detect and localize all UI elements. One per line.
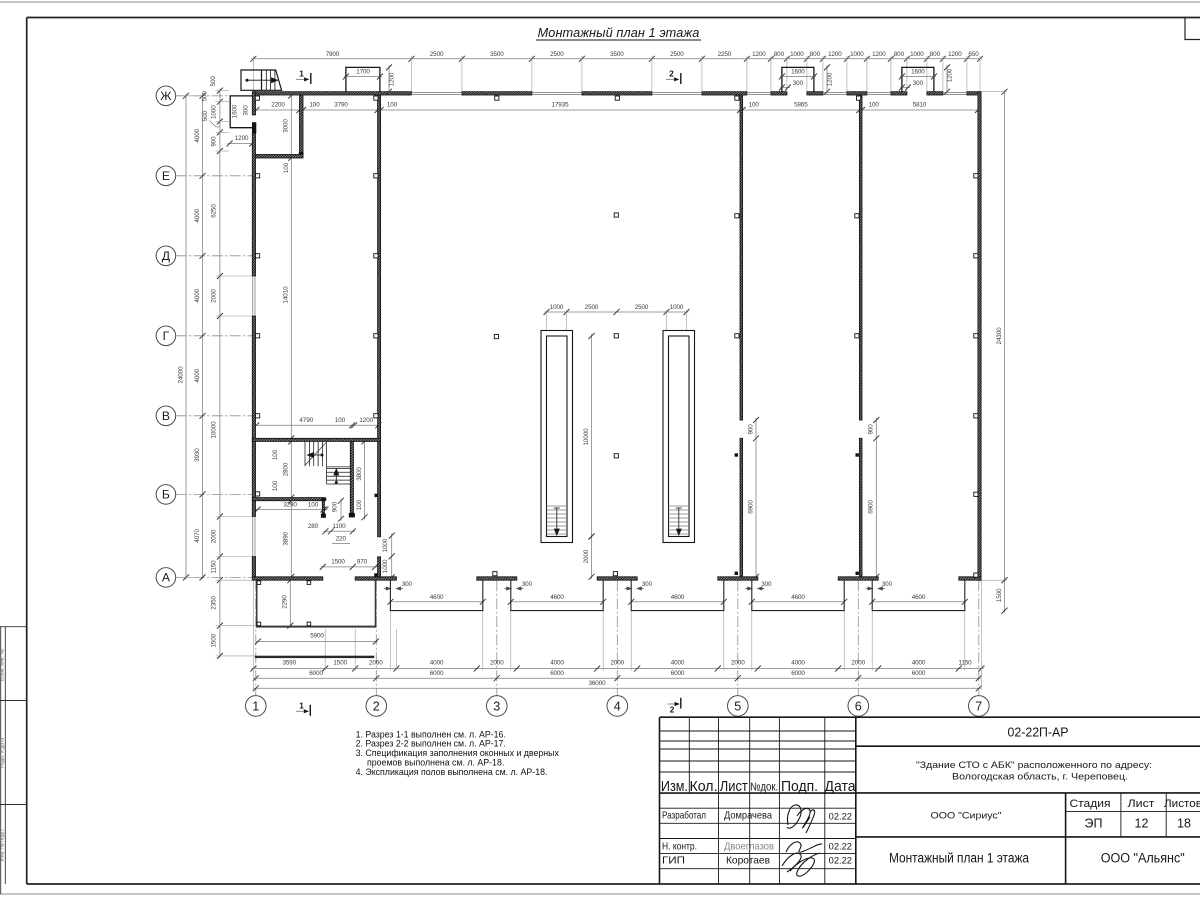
svg-text:1000: 1000 <box>910 51 924 58</box>
svg-text:2250: 2250 <box>718 51 732 58</box>
svg-text:02.22: 02.22 <box>829 856 852 866</box>
svg-text:800: 800 <box>774 51 785 58</box>
svg-text:1500: 1500 <box>331 559 345 566</box>
svg-text:1200: 1200 <box>948 51 962 58</box>
svg-text:Лист: Лист <box>1128 798 1155 810</box>
svg-text:1500: 1500 <box>996 588 1003 602</box>
svg-text:3590: 3590 <box>282 660 296 667</box>
svg-text:3500: 3500 <box>490 51 504 58</box>
svg-text:1200: 1200 <box>828 51 842 58</box>
svg-text:7900: 7900 <box>326 51 340 58</box>
svg-text:4000: 4000 <box>912 660 926 667</box>
svg-text:5810: 5810 <box>913 102 927 109</box>
svg-text:4600: 4600 <box>430 594 444 601</box>
svg-text:№док.: №док. <box>750 781 778 793</box>
svg-text:500: 500 <box>201 91 208 102</box>
svg-text:650: 650 <box>968 51 979 58</box>
svg-text:2: 2 <box>373 699 380 713</box>
svg-text:3: 3 <box>493 699 500 713</box>
svg-text:2500: 2500 <box>430 51 444 58</box>
svg-text:100: 100 <box>309 102 320 109</box>
svg-text:2500: 2500 <box>585 304 599 311</box>
svg-text:Лист: Лист <box>720 778 748 795</box>
svg-text:10000: 10000 <box>211 421 218 439</box>
svg-text:24300: 24300 <box>996 327 1003 345</box>
svg-text:5900: 5900 <box>310 632 324 639</box>
svg-text:Подп. и дата: Подп. и дата <box>0 738 5 769</box>
svg-text:Вологодская область, г. Черепо: Вологодская область, г. Череповец. <box>952 771 1128 781</box>
svg-text:6250: 6250 <box>211 204 218 218</box>
svg-text:500: 500 <box>202 111 209 122</box>
svg-text:ЭП: ЭП <box>1085 816 1103 830</box>
svg-text:Двоеглазов: Двоеглазов <box>724 840 774 852</box>
svg-text:4000: 4000 <box>671 660 685 667</box>
svg-text:1000: 1000 <box>211 105 218 119</box>
svg-text:3790: 3790 <box>334 102 348 109</box>
svg-text:2: 2 <box>670 705 675 714</box>
svg-text:Н. контр.: Н. контр. <box>662 840 697 852</box>
svg-text:Домрачева: Домрачева <box>724 810 772 822</box>
svg-text:В: В <box>162 409 170 423</box>
svg-text:02.22: 02.22 <box>829 842 852 852</box>
svg-text:Взам. инв. №: Взам. инв. № <box>0 648 5 681</box>
svg-text:4070: 4070 <box>194 528 201 542</box>
svg-text:1600: 1600 <box>232 104 239 118</box>
svg-text:100: 100 <box>356 499 363 510</box>
svg-text:4: 4 <box>614 699 621 713</box>
svg-text:900: 900 <box>332 501 339 512</box>
svg-text:Коротаев: Коротаев <box>726 855 770 867</box>
svg-text:800: 800 <box>894 51 905 58</box>
svg-text:100: 100 <box>283 162 290 173</box>
svg-text:2000: 2000 <box>583 549 590 563</box>
svg-text:100: 100 <box>272 449 279 460</box>
svg-text:12: 12 <box>1135 816 1149 830</box>
svg-text:6000: 6000 <box>791 670 805 677</box>
svg-text:1000: 1000 <box>670 304 684 311</box>
svg-text:4000: 4000 <box>550 660 564 667</box>
svg-text:2000: 2000 <box>490 660 504 667</box>
svg-text:900: 900 <box>747 424 754 435</box>
svg-text:2350: 2350 <box>211 595 218 609</box>
svg-text:100: 100 <box>869 102 880 109</box>
svg-text:300: 300 <box>882 581 893 588</box>
svg-text:800: 800 <box>810 51 821 58</box>
svg-text:4000: 4000 <box>791 660 805 667</box>
svg-text:2000: 2000 <box>211 289 218 303</box>
svg-text:1200: 1200 <box>827 72 834 86</box>
svg-text:1200: 1200 <box>872 51 886 58</box>
svg-text:970: 970 <box>357 559 368 566</box>
svg-text:3290: 3290 <box>283 501 297 508</box>
svg-text:Е: Е <box>162 169 170 183</box>
svg-text:14010: 14010 <box>283 286 290 304</box>
svg-text:2000: 2000 <box>610 660 624 667</box>
svg-text:2: 2 <box>669 69 674 78</box>
svg-text:300: 300 <box>522 581 533 588</box>
svg-text:4600: 4600 <box>671 594 685 601</box>
svg-text:1000: 1000 <box>790 51 804 58</box>
svg-text:Б: Б <box>162 488 170 502</box>
svg-text:1200: 1200 <box>235 135 249 142</box>
svg-text:Листов: Листов <box>1164 798 1200 810</box>
svg-text:ГИП: ГИП <box>662 855 685 867</box>
svg-text:6: 6 <box>855 699 862 713</box>
svg-text:100: 100 <box>308 501 319 508</box>
svg-text:Разработал: Разработал <box>662 810 706 822</box>
svg-text:"Здание СТО с АБК" расположенн: "Здание СТО с АБК" расположенного по адр… <box>916 760 1152 770</box>
svg-text:Стадия: Стадия <box>1070 798 1111 810</box>
svg-text:300: 300 <box>761 581 772 588</box>
svg-text:6000: 6000 <box>912 670 926 677</box>
svg-text:1000: 1000 <box>850 51 864 58</box>
svg-text:300: 300 <box>793 80 804 87</box>
svg-text:1100: 1100 <box>332 523 346 530</box>
svg-text:24000: 24000 <box>178 366 185 384</box>
svg-text:220: 220 <box>336 536 347 543</box>
svg-text:1150: 1150 <box>958 660 972 667</box>
svg-text:1600: 1600 <box>911 69 925 76</box>
svg-text:3000: 3000 <box>283 119 290 133</box>
svg-text:1: 1 <box>299 69 304 78</box>
svg-text:300: 300 <box>243 105 250 116</box>
svg-text:2500: 2500 <box>635 304 649 311</box>
svg-text:1200: 1200 <box>947 68 954 82</box>
svg-text:900: 900 <box>211 136 218 147</box>
svg-text:Изм.: Изм. <box>661 778 688 795</box>
svg-text:300: 300 <box>642 581 653 588</box>
svg-text:Ж: Ж <box>160 89 172 103</box>
svg-text:3890: 3890 <box>283 531 290 545</box>
svg-text:800: 800 <box>930 51 941 58</box>
svg-text:02-22П-АР: 02-22П-АР <box>1008 725 1069 740</box>
svg-text:300: 300 <box>402 581 413 588</box>
svg-text:17935: 17935 <box>551 102 569 109</box>
svg-text:Инв. № подл.: Инв. № подл. <box>0 829 5 861</box>
svg-text:1200: 1200 <box>389 72 396 86</box>
svg-text:А: А <box>162 571 171 585</box>
svg-text:6000: 6000 <box>671 670 685 677</box>
svg-text:4600: 4600 <box>791 594 805 601</box>
svg-text:Монтажный план 1 этажа: Монтажный план 1 этажа <box>538 26 700 40</box>
svg-text:Г: Г <box>163 329 170 343</box>
svg-text:4000: 4000 <box>194 128 201 142</box>
svg-text:900: 900 <box>868 424 875 435</box>
svg-text:Дата: Дата <box>825 778 857 795</box>
svg-text:100: 100 <box>749 102 760 109</box>
svg-text:2500: 2500 <box>550 51 564 58</box>
svg-text:4. Экспликация полов выполнена: 4. Экспликация полов выполнена см. л. АР… <box>356 767 548 777</box>
svg-text:6900: 6900 <box>747 500 754 514</box>
svg-text:100: 100 <box>387 102 398 109</box>
svg-text:4790: 4790 <box>299 417 313 424</box>
svg-text:4000: 4000 <box>430 660 444 667</box>
svg-text:ООО "Сириус": ООО "Сириус" <box>931 810 1002 821</box>
svg-text:6000: 6000 <box>550 670 564 677</box>
svg-text:280: 280 <box>308 523 319 530</box>
svg-text:2500: 2500 <box>670 51 684 58</box>
svg-text:3800: 3800 <box>356 467 363 481</box>
svg-text:1200: 1200 <box>752 51 766 58</box>
svg-text:18: 18 <box>1177 816 1191 830</box>
svg-text:1000: 1000 <box>550 304 564 311</box>
svg-text:2000: 2000 <box>731 660 745 667</box>
svg-text:1200: 1200 <box>359 417 373 424</box>
svg-text:1500: 1500 <box>211 633 218 647</box>
svg-text:4600: 4600 <box>912 594 926 601</box>
svg-text:02.22: 02.22 <box>829 812 852 822</box>
svg-text:500: 500 <box>210 76 217 87</box>
svg-text:6000: 6000 <box>309 670 323 677</box>
svg-text:4000: 4000 <box>194 208 201 222</box>
svg-text:1700: 1700 <box>356 69 370 76</box>
svg-text:5865: 5865 <box>794 102 808 109</box>
svg-text:1: 1 <box>252 699 259 713</box>
svg-text:1000: 1000 <box>382 538 389 552</box>
svg-text:ООО "Альянс": ООО "Альянс" <box>1101 851 1185 866</box>
svg-text:Монтажный план 1 этажа: Монтажный план 1 этажа <box>889 851 1029 866</box>
svg-text:10000: 10000 <box>583 428 590 446</box>
svg-text:1600: 1600 <box>791 69 805 76</box>
svg-text:4000: 4000 <box>194 368 201 382</box>
svg-text:2800: 2800 <box>283 462 290 476</box>
svg-text:2060: 2060 <box>369 660 383 667</box>
svg-text:1: 1 <box>299 702 304 711</box>
svg-text:5: 5 <box>734 699 741 713</box>
svg-text:100: 100 <box>335 417 346 424</box>
svg-text:6900: 6900 <box>868 500 875 514</box>
svg-text:2000: 2000 <box>211 529 218 543</box>
svg-text:4000: 4000 <box>194 288 201 302</box>
svg-text:1000: 1000 <box>382 559 389 573</box>
svg-text:Д: Д <box>162 249 171 263</box>
svg-text:3500: 3500 <box>610 51 624 58</box>
svg-text:100: 100 <box>272 480 279 491</box>
svg-text:36000: 36000 <box>588 680 606 687</box>
svg-text:7: 7 <box>975 699 982 713</box>
svg-text:3930: 3930 <box>194 448 201 462</box>
svg-text:Подп.: Подп. <box>781 778 818 795</box>
svg-text:6000: 6000 <box>430 670 444 677</box>
svg-text:1150: 1150 <box>211 560 218 574</box>
svg-text:2000: 2000 <box>851 660 865 667</box>
svg-text:Кол.: Кол. <box>690 778 718 795</box>
svg-text:2290: 2290 <box>282 595 289 609</box>
svg-text:4600: 4600 <box>550 594 564 601</box>
svg-text:1500: 1500 <box>333 660 347 667</box>
svg-text:2200: 2200 <box>271 102 285 109</box>
svg-text:300: 300 <box>913 80 924 87</box>
